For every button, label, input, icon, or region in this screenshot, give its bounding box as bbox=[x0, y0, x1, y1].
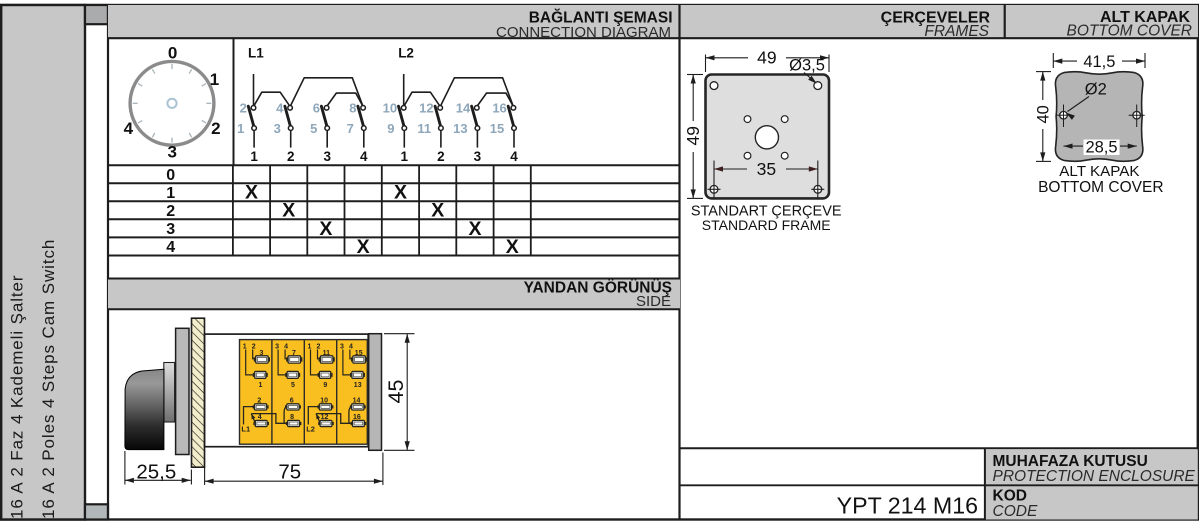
svg-text:10: 10 bbox=[383, 101, 397, 116]
svg-text:9: 9 bbox=[387, 121, 394, 136]
svg-text:1: 1 bbox=[243, 344, 247, 351]
svg-text:1: 1 bbox=[166, 185, 175, 202]
svg-text:ALT KAPAK: ALT KAPAK bbox=[1059, 163, 1139, 180]
svg-text:0: 0 bbox=[166, 167, 175, 184]
svg-text:28,5: 28,5 bbox=[1085, 138, 1117, 156]
svg-text:BOTTOM COVER: BOTTOM COVER bbox=[1067, 23, 1192, 40]
svg-text:13: 13 bbox=[453, 121, 467, 136]
svg-text:13: 13 bbox=[354, 382, 362, 389]
svg-text:X: X bbox=[357, 236, 370, 258]
svg-text:X: X bbox=[468, 218, 481, 240]
svg-text:1: 1 bbox=[210, 70, 219, 89]
svg-text:L1: L1 bbox=[248, 46, 264, 61]
svg-text:BOTTOM COVER: BOTTOM COVER bbox=[1038, 179, 1163, 196]
svg-text:9: 9 bbox=[323, 382, 327, 389]
svg-text:12: 12 bbox=[419, 101, 433, 116]
svg-text:5: 5 bbox=[291, 382, 295, 389]
svg-text:25,5: 25,5 bbox=[136, 460, 176, 483]
svg-text:PROTECTION ENCLOSURE: PROTECTION ENCLOSURE bbox=[993, 468, 1196, 485]
svg-text:3: 3 bbox=[275, 344, 279, 351]
svg-text:49: 49 bbox=[683, 126, 703, 145]
svg-text:X: X bbox=[245, 182, 258, 204]
svg-text:3: 3 bbox=[340, 344, 344, 351]
svg-text:3: 3 bbox=[274, 121, 281, 136]
svg-text:X: X bbox=[394, 182, 407, 204]
svg-text:L2: L2 bbox=[306, 425, 315, 434]
svg-text:75: 75 bbox=[278, 461, 301, 484]
svg-text:YPT 214 M16: YPT 214 M16 bbox=[837, 493, 978, 519]
svg-text:4: 4 bbox=[284, 344, 288, 351]
svg-text:0: 0 bbox=[168, 43, 177, 62]
svg-text:CODE: CODE bbox=[993, 503, 1038, 520]
svg-text:L2: L2 bbox=[398, 46, 414, 61]
svg-text:X: X bbox=[431, 200, 444, 222]
svg-text:4: 4 bbox=[349, 344, 353, 351]
svg-text:15: 15 bbox=[490, 121, 504, 136]
svg-text:16 A 2 Faz 4 Kademeli Şalter: 16 A 2 Faz 4 Kademeli Şalter bbox=[7, 275, 26, 519]
svg-text:1: 1 bbox=[401, 149, 409, 164]
svg-text:STANDARD FRAME: STANDARD FRAME bbox=[702, 217, 831, 233]
svg-text:8: 8 bbox=[349, 101, 356, 116]
svg-text:14: 14 bbox=[456, 101, 471, 116]
svg-text:SIDE: SIDE bbox=[636, 293, 671, 310]
svg-text:1: 1 bbox=[308, 344, 312, 351]
svg-text:2: 2 bbox=[166, 203, 175, 220]
svg-text:45: 45 bbox=[384, 380, 408, 404]
svg-text:41,5: 41,5 bbox=[1083, 53, 1115, 71]
svg-text:16 A 2 Poles 4 Steps Cam Switc: 16 A 2 Poles 4 Steps Cam Switch bbox=[39, 239, 58, 519]
svg-text:2: 2 bbox=[252, 344, 256, 351]
svg-text:11: 11 bbox=[417, 121, 431, 136]
svg-text:3: 3 bbox=[474, 149, 482, 164]
svg-text:2: 2 bbox=[211, 119, 220, 138]
svg-text:35: 35 bbox=[757, 159, 776, 179]
svg-text:49: 49 bbox=[757, 47, 776, 67]
svg-text:7: 7 bbox=[347, 121, 354, 136]
svg-text:1: 1 bbox=[237, 121, 244, 136]
svg-text:CONNECTION DIAGRAM: CONNECTION DIAGRAM bbox=[496, 24, 671, 41]
svg-text:4: 4 bbox=[166, 239, 175, 256]
svg-text:FRAMES: FRAMES bbox=[924, 23, 989, 40]
svg-text:L1: L1 bbox=[241, 425, 250, 434]
svg-text:3: 3 bbox=[166, 221, 175, 238]
svg-text:Ø2: Ø2 bbox=[1085, 81, 1107, 99]
svg-text:3: 3 bbox=[323, 149, 331, 164]
svg-text:4: 4 bbox=[510, 149, 518, 164]
svg-text:1: 1 bbox=[259, 382, 263, 389]
svg-text:1: 1 bbox=[250, 149, 258, 164]
svg-text:X: X bbox=[506, 236, 519, 258]
svg-text:X: X bbox=[319, 218, 332, 240]
svg-text:2: 2 bbox=[437, 149, 445, 164]
svg-text:3: 3 bbox=[167, 142, 176, 161]
svg-text:X: X bbox=[282, 200, 295, 222]
svg-text:6: 6 bbox=[313, 101, 320, 116]
svg-text:2: 2 bbox=[317, 344, 321, 351]
svg-text:2: 2 bbox=[287, 149, 295, 164]
svg-text:2: 2 bbox=[240, 101, 247, 116]
svg-text:4: 4 bbox=[360, 149, 368, 164]
svg-text:5: 5 bbox=[310, 121, 317, 136]
svg-text:16: 16 bbox=[492, 101, 506, 116]
svg-text:4: 4 bbox=[124, 119, 134, 138]
svg-text:Ø3,5: Ø3,5 bbox=[789, 56, 825, 74]
svg-text:4: 4 bbox=[276, 101, 284, 116]
svg-text:40: 40 bbox=[1034, 105, 1052, 123]
